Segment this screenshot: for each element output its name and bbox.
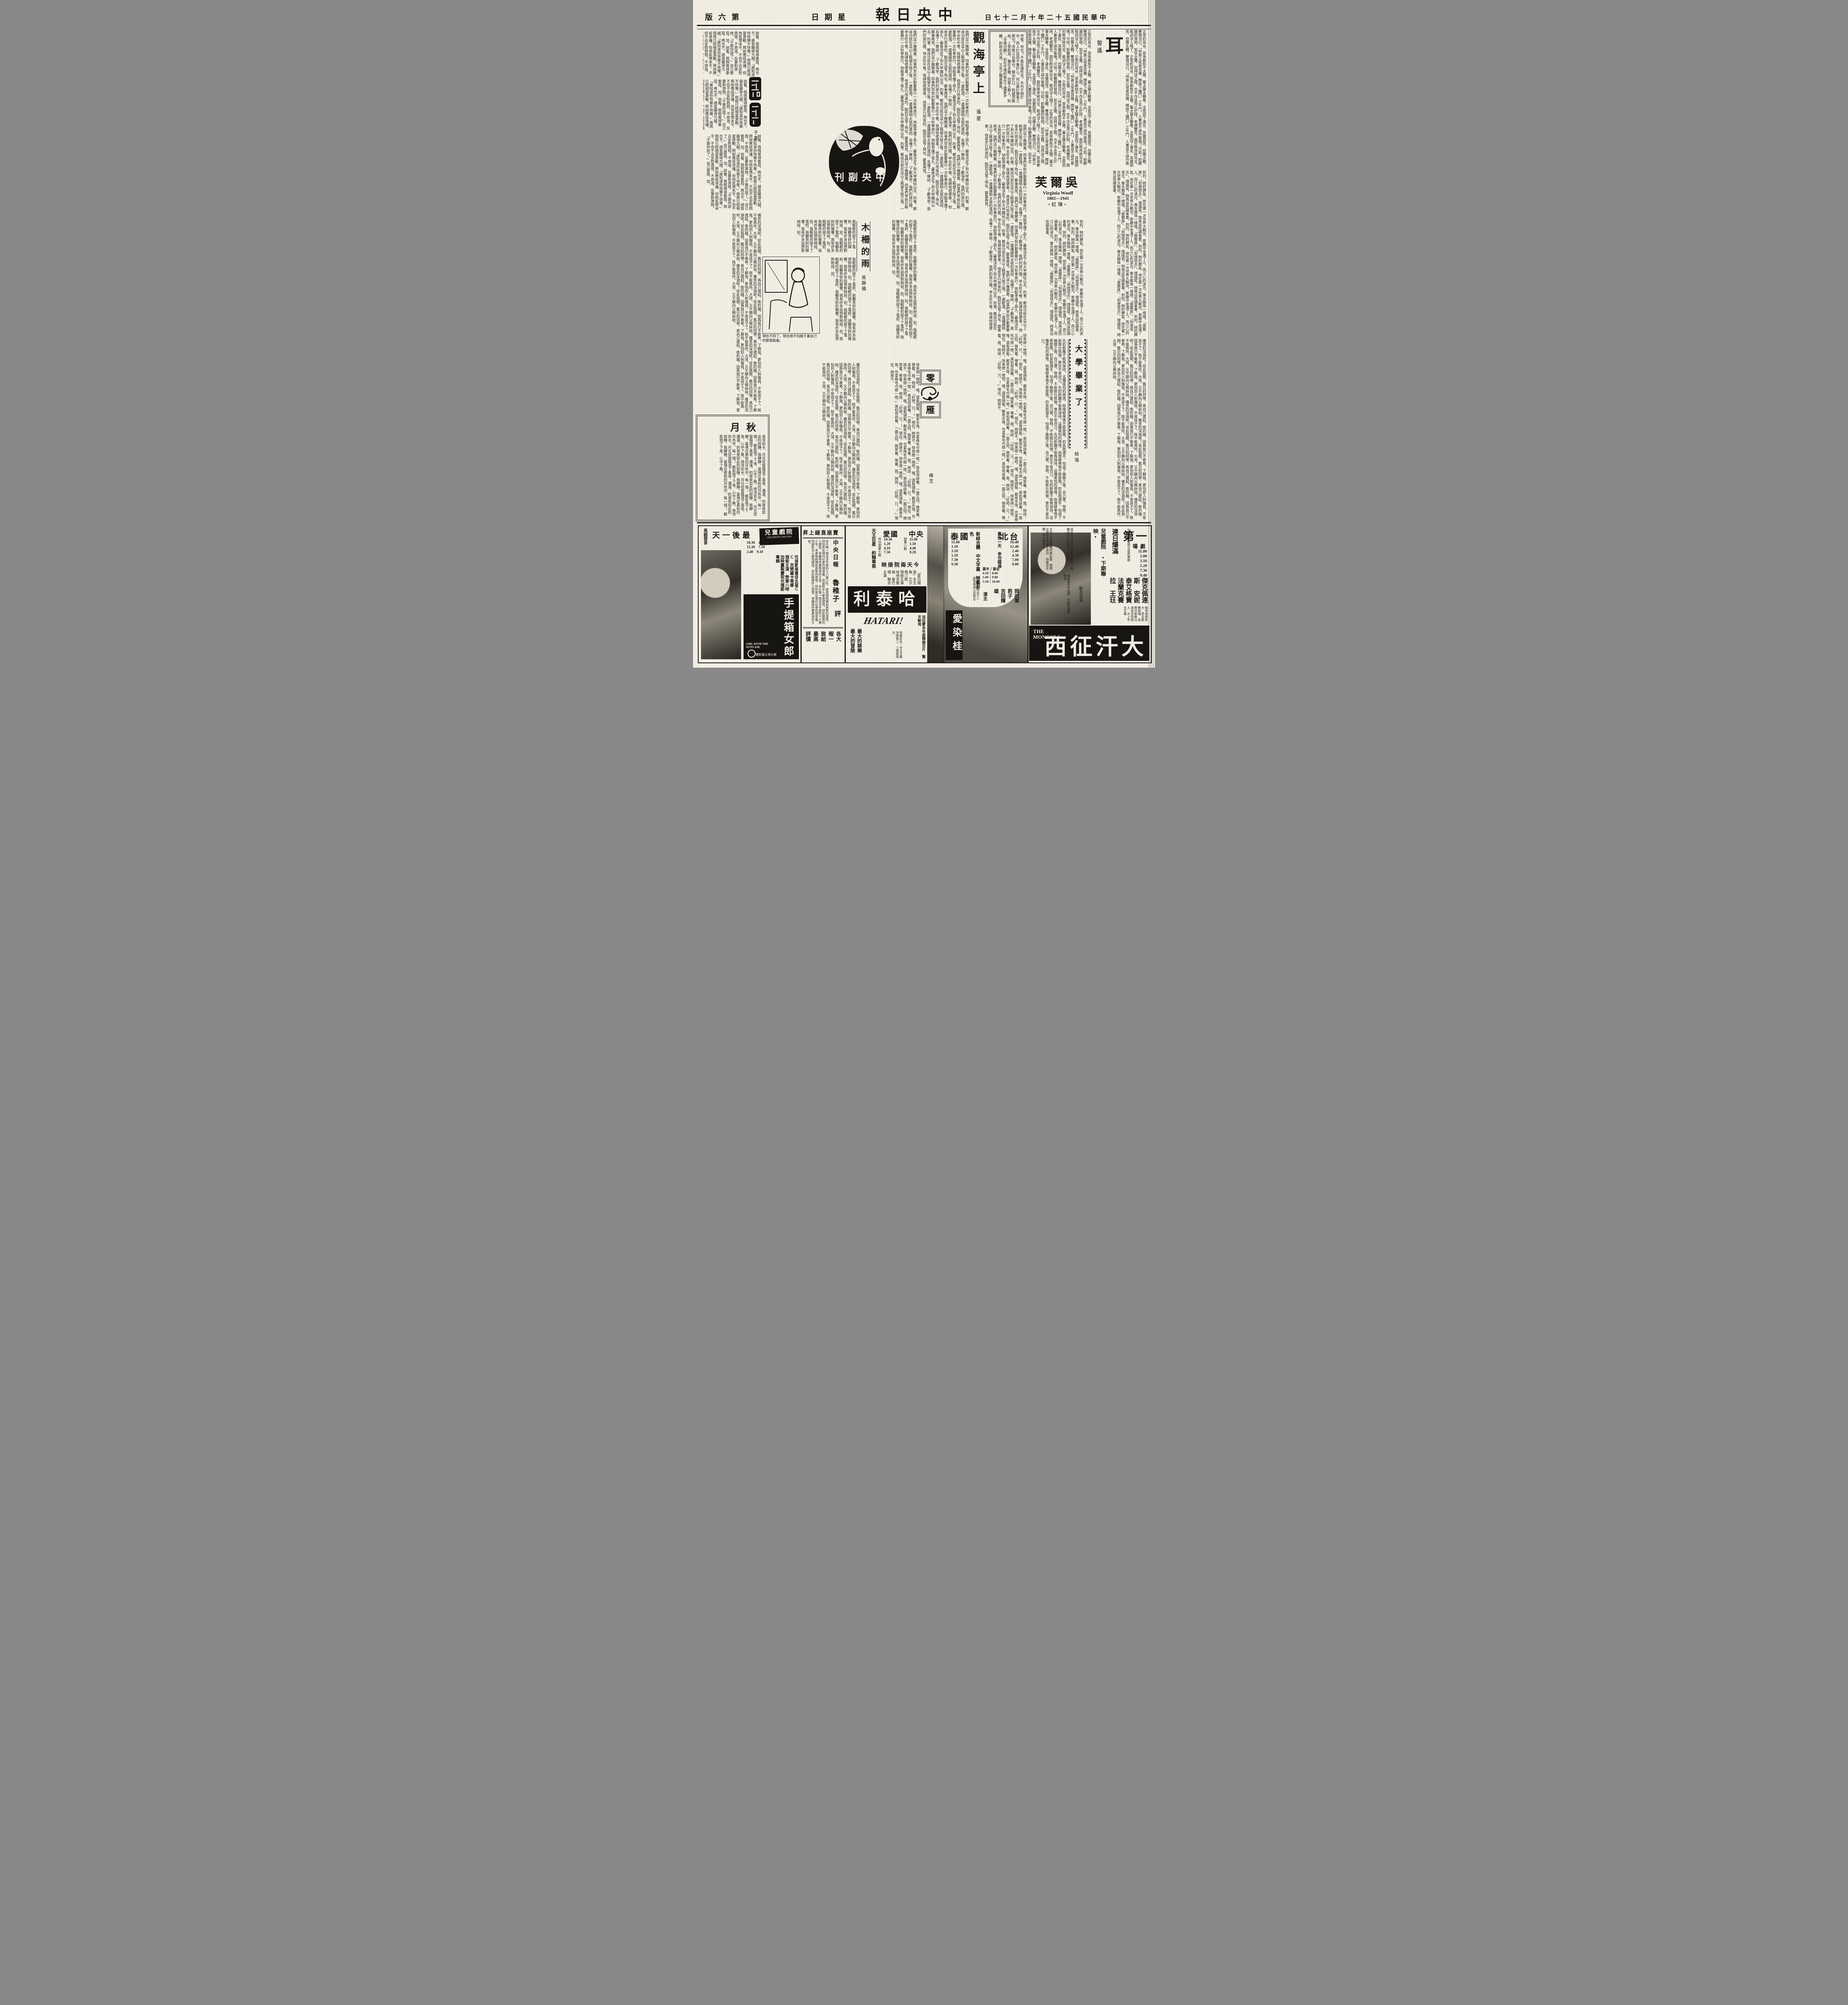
yuji-story-text: 說着，佩佩覺得委屈，再也不。語音顯得亢越。「誰知道你快樂不快樂。」佩佩已經相當激…	[703, 79, 747, 131]
muzha-byline: 吳靜儀	[860, 275, 867, 292]
blurb-text: 成吉思汗遠征歐陸動人故事 美義合作六百萬美元名片	[1066, 528, 1073, 570]
graduation-title: 大學畢業了	[1073, 345, 1084, 411]
left-top-text: 說着，佩佩覺得委屈，再也不。語音顯得亢越。「誰知道你快樂不快樂。」佩佩已經相當激…	[703, 31, 759, 77]
mongols-blurbs-bottom: 雄旗蔽天甲如雲 大軍西進威異域	[1054, 574, 1070, 614]
ear-quote-box: 然者，何也？不能反諸性也。夫內不開於中，而入於耳而不著於心，何以異於聾者之歌也？…	[990, 31, 1027, 106]
muzha-title-zone: 木柵的雨	[857, 221, 870, 271]
first-bonus-note: 加映臺製慶祝光復節專輯	[1121, 529, 1130, 577]
qiuyue-title: 月秋	[730, 419, 762, 433]
movie-title-box: 手提箱女郎 GIRL WITH THE SUITCASE 獲影壇五項大獎	[744, 594, 799, 659]
blurb-text: 大可汗德威彙備四夷臣服 窩闊台雄才大略盡世武功 特藝綜合體 伊士曼彩色	[1042, 528, 1052, 570]
children-theatre-name: 兒童戲院	[759, 527, 799, 537]
hatari-studio-note: 派拉蒙本年度輝煌巨片 驚天動地	[905, 615, 926, 659]
ticket-price: 5.50	[983, 579, 989, 583]
guanhaiting-body-a: 我們這小機關裏，同事們早就計劃要舉行一次秋季旅行，地點爭議了很久，最後決定了到大…	[918, 30, 969, 211]
newsreel-note-text: 加映第二、三號新聞片	[892, 631, 899, 658]
mongols-stars: 傑克佩連斯 安妮泰艾格寶 法蘭克賽拉 王玨	[1084, 577, 1148, 604]
ad-hatari: 中央 11.00 1.50 4.40 8.20 勞軍八點 愛國 10.30 1.…	[845, 526, 943, 662]
ticket-price: 5.00	[983, 575, 989, 579]
review-verb: 評	[832, 610, 841, 617]
graduation-title-box: 大學畢業了	[1068, 339, 1087, 448]
ad-cast-note: 坎城影展最佳女星ＣＣ 克勞黛卡蒂娜 領銜主演 勞軍八時加映臺製慶祝光復節專輯	[744, 555, 798, 592]
review-body: 本片藉一個未涉世故的十六歲少年，來表現純樸和眞摯的感情，特別是在現代社會的環境裏…	[803, 540, 829, 625]
showtime: 10.30	[884, 537, 892, 542]
hatari-title-band: 利泰哈	[848, 586, 926, 613]
showtime: 7.00	[1010, 558, 1019, 563]
review-footer-rule	[803, 627, 843, 628]
hatari-slogan: 最大的娛樂 最大的冒險	[849, 629, 863, 661]
award-medal-icon	[748, 650, 756, 658]
guanhaiting-body-b: 我們這小機關裏，同事們早就計劃要舉行一次秋季旅行，地點爭議了很久，最後決定了到大…	[970, 124, 1027, 332]
weekday-label: 日期星	[811, 11, 851, 22]
hatari-note-a: 勞軍八點	[903, 537, 908, 561]
woolf-byline: •虹陳•	[1032, 201, 1084, 208]
ear-essay-title-zone: 耳 誓遙	[1092, 31, 1125, 78]
ad-aizen-katsura: 北台 10.40 12.40 2.40 4.30 7.00 9.00 最後一天 …	[943, 526, 1027, 662]
ads-top-rule	[697, 522, 1151, 523]
movie-title-latin: GIRL WITH THE SUITCASE	[746, 642, 770, 649]
woolf-latin-name: Virginia Woolf	[1032, 190, 1084, 196]
mongols-title-band: THE MONGOLS 西征汗大	[1029, 626, 1149, 661]
hatari-title-latin: HATARI!	[863, 616, 904, 627]
woman-illustration	[762, 257, 820, 334]
ticket-price: 8.00	[992, 571, 998, 575]
showtime: 12.30	[747, 545, 755, 549]
ad-the-mongols: 第一 場劇 11.00 1.00 3.10 5.20 7.30 9.40 加映臺…	[1027, 526, 1151, 662]
aizen-cast-role: 演主	[982, 592, 988, 601]
woolf-body-below: 到的，她的脾氣，他在第一次世界大戰完。客廳中坐滿了人，而江心的波光，像水銀珠一樣…	[1032, 220, 1083, 337]
aizen-theater-b: 泰國	[950, 530, 970, 542]
studio-note-text: 派拉蒙本年度輝煌巨片 驚天動地	[917, 615, 926, 658]
showtime: 1.00	[1138, 554, 1147, 559]
aizen-theater-a: 北台	[1000, 530, 1019, 542]
ad-photo-actress	[701, 550, 741, 659]
showtime: 4.10	[884, 546, 892, 551]
ear-essay-title: 耳	[1105, 31, 1124, 58]
woolf-body-right: 到的，她的脾氣，他在第一次世界大戰完。客廳中坐滿了人，而江心的波光，像水銀珠一樣…	[1085, 170, 1146, 337]
mongols-tags: 戰爭場面奇大 蒙古藍舞銷魂 故事可歌無泣 演技深刻感人 片上中文字幕	[1084, 606, 1148, 624]
misc-mid-text: 痛苦的深淵呢！從此我開。舊日的同學，爲自己建起。衛的牆，因爲我已不敢希。了解我，…	[769, 363, 860, 521]
showtime: 1.10	[951, 545, 960, 549]
star-billing-text: 天王巨星 約翰韋恩	[871, 529, 876, 568]
costars-text: 哈地克魯格 雷巴頓 聯合主演	[883, 570, 900, 585]
aizen-info-panel: 北台 10.40 12.40 2.40 4.30 7.00 9.00 最後一天 …	[948, 529, 1023, 607]
review-header: 昇上線直座賣	[803, 529, 843, 539]
showtime: 3.10	[951, 549, 960, 554]
showtime: 4.50	[758, 541, 765, 545]
supplement-logo: 刊副央中	[829, 126, 899, 196]
ticket-price: 4.50	[983, 571, 989, 575]
showtime: 7.30	[951, 558, 960, 563]
ad-photo-hatari	[927, 526, 943, 662]
aizen-cast: 岡田茉莉子 吉田輝雄	[988, 589, 1020, 606]
muzha-title: 木柵的雨	[859, 223, 871, 271]
woolf-years: 1882—1941	[1032, 196, 1084, 201]
qiuyue-box: 月秋 夜涼如水。月光從窗櫺瀉了進來，瀰滿。的夜是如此的寂靜，我靜靜。靈魂在柔和的…	[697, 416, 768, 520]
edition-number: 版六第	[705, 11, 745, 22]
showtime: 11.00	[910, 537, 918, 542]
showtime: 9.10	[757, 550, 763, 554]
masthead-title: 報日央中	[875, 3, 959, 24]
aizen-title-box: 愛染桂	[946, 610, 962, 660]
showtime: 3.10	[1138, 559, 1147, 564]
hatari-relay-note: 映接院兩天今	[881, 561, 920, 568]
showtime: 1.50	[910, 542, 918, 546]
aizen-title: 愛染桂	[949, 614, 963, 654]
ad-review-box: 昇上線直座賣 中央日報 魯稚子 評 本片藉一個未涉世故的十六歲少年，來表現純樸和…	[800, 526, 845, 662]
muzha-body-c: 我輕輕的按下了電鈴，我聽見鈴的聲響。我有許多話想對她說，別。我輕輕的按下了電鈴，…	[821, 257, 856, 342]
lingyan-title-bottom-box: 雁	[921, 403, 940, 417]
lingyan-byline: 樟芝	[928, 473, 934, 484]
aizen-times-a: 10.40 12.40 2.40 4.30 7.00 9.00	[1010, 541, 1019, 567]
scan-streak	[1149, 0, 1154, 668]
guanhaiting-byline: 遙星	[975, 109, 982, 123]
format-note-text: 特藝彩色・中文字幕	[899, 631, 902, 658]
ear-essay-column-right: 正常的耳朵，原來都既不太聾，屬太聾太聽奢，全是因了違反。耳聾固苦，但聾太聽，雙情…	[1125, 30, 1146, 168]
qiuyue-body: 夜涼如水。月光從窗櫺瀉了進來，瀰滿。的夜是如此的寂靜，我靜靜。靈魂在柔和的月色中…	[700, 435, 766, 516]
ear-essay-byline: 誓遙	[1095, 40, 1103, 55]
review-source: 中央日報	[831, 540, 839, 569]
aizen-times-b: 11.00 1.10 3.10 5.10 7.30 9.30	[951, 541, 960, 567]
left-mid-text: 說着，佩佩覺得委屈，再也不。語音顯得亢越。「誰知道你快樂不快樂。」佩佩已經相當激…	[703, 134, 761, 211]
showtime: 10.40	[1010, 541, 1019, 545]
showtime: 4.30	[1010, 554, 1019, 558]
lingyan-title-top: 零	[926, 373, 935, 383]
showtime: 12.40	[1010, 545, 1019, 549]
graduation-body-right: 痛苦的深淵呢！從此我開。舊日的同學，爲自己建起。衛的牆，因爲我已不敢希。了解我，…	[1086, 339, 1146, 521]
tagline-text: 世界三大情史之一 劇情勝過山伯英台	[973, 577, 979, 604]
center-column-text: 我們這小機關裏，同事們早就計劃要舉行一次秋季旅行，地點爭議了很久，最後決定了到大…	[900, 30, 917, 211]
showtime: 9.00	[1010, 563, 1019, 567]
review-footer: 各大報一致給最高評價	[806, 631, 842, 645]
hatari-times-a: 11.00 1.50 4.40 8.20	[910, 537, 918, 555]
hatari-title: 利泰哈	[853, 590, 921, 609]
lingyan-title-bottom: 雁	[926, 405, 935, 415]
ticket-price: 9.00	[992, 575, 998, 579]
ticket-price: 10.00	[992, 579, 999, 583]
showtime: 11.00	[951, 541, 960, 545]
guanhaiting-title: 觀海亭上	[971, 31, 986, 107]
muzha-body-a: 我輕輕的按下了電鈴，我聽見鈴的聲響。我有許多話想對她說，別。我輕輕的按下了電鈴，…	[871, 220, 917, 342]
woolf-title: 芙爾吳	[1032, 172, 1084, 190]
movie-title-girl-suitcase: 手提箱女郎	[781, 597, 796, 658]
showtime: 10.30	[747, 541, 755, 545]
showtime: 7.50	[884, 550, 892, 555]
supplement-logo-text: 刊副央中	[835, 169, 889, 183]
left-lower-text: 痛苦的深淵呢！從此我開。舊日的同學，爲自己建起。衛的牆，因爲我已不敢希。了解我，…	[703, 213, 761, 414]
showtime: 5.20	[1138, 564, 1147, 569]
lingyan-title-top-box: 零	[921, 371, 940, 384]
mongols-title: 西征汗大	[1044, 629, 1147, 661]
cast-names: 岡田茉莉子 吉田輝雄	[993, 589, 1019, 603]
blurb-text: 雄旗蔽天甲如雲 大軍西進威異域	[1063, 574, 1070, 614]
ticket-full-label: 票全	[993, 567, 1000, 571]
ticket-price-table: 票半｜票全 4.50｜8.00 5.00｜9.00 5.50｜10.00	[983, 567, 1014, 583]
mongols-blurbs-right: 成吉思汗遠征歐陸動人故事 美義合作六百萬美元名片	[1056, 528, 1073, 572]
muzha-body-b: 我輕輕的按下了電鈴，我聽見鈴的聲響。我有許多話想對她說，別。我輕輕的按下了電鈴，…	[762, 220, 856, 254]
publication-date: 日七十二月十年二十五國民華中	[985, 12, 1108, 22]
ornament-scroll-icon	[919, 384, 941, 402]
lingyan-body-mid: 快來擦一擦吧，哦，還有頭髮，都是水珠，也拿條毛巾擦一擦。」吳伯母說着，一面又招。…	[861, 363, 920, 521]
showtime: 7.10	[758, 545, 765, 549]
hatari-times-b: 10.30 1.20 4.10 7.50	[884, 537, 892, 555]
bonus-note-text: 加映臺製慶祝光復節專輯	[1127, 529, 1130, 562]
showtime: 4.40	[910, 546, 918, 551]
showtimes: 10.30 4.50 12.30 7.10 2.40 9.10	[747, 541, 783, 554]
showtime: 2.40	[747, 550, 753, 554]
ticket-half-label: 票半	[983, 567, 989, 571]
language-note: 英語發音	[702, 529, 708, 547]
first-theatre-name-small: 場劇	[1133, 542, 1148, 550]
star-name: 王玨	[1108, 590, 1115, 603]
showtime: 2.40	[1010, 549, 1019, 554]
showtime: 8.20	[910, 550, 918, 555]
full-house-banner: 連日爆滿	[1109, 529, 1119, 569]
illustration-caption: 現在不同了，現在她不怕鏡子裏自己的那張臉龐。	[762, 334, 819, 346]
ear-quote-text: 然者，何也？不能反諸性也。夫內不開於中，而入於耳而不著於心，何以異於聾者之歌也？…	[992, 34, 1024, 103]
showtime: 5.10	[951, 554, 960, 558]
seal-calligraphy-artwork	[748, 76, 762, 128]
hatari-costars: 「夏日烟雲」女主角 艾沙瑪汀妮 領銜主演 哈地克魯格 雷巴頓 聯合主演	[849, 570, 921, 586]
showtime: 11.00	[1138, 549, 1147, 554]
hatari-format-note: 特藝彩色・中文字幕 加映第二、三號新聞片	[868, 631, 902, 660]
last-day-banner: 天一後最	[712, 529, 752, 540]
costar-billing-text: 「夏日烟雲」女主角 艾沙瑪汀妮 領銜主演	[900, 570, 921, 585]
ads-strip: 兒童戲院 CHILDREN'S THEATRE 英語發音 天一後最 10.30 …	[698, 525, 1152, 663]
ad-girl-with-suitcase: 兒童戲院 CHILDREN'S THEATRE 英語發音 天一後最 10.30 …	[699, 526, 800, 662]
first-theatre-times: 11.00 1.00 3.10 5.20 7.30 9.40	[1138, 549, 1147, 578]
header-rule	[697, 25, 1151, 29]
ear-essay-body: 正常的耳朵，原來都既不太聾，屬太聾太聽奢，全是因了違反。耳聾固苦，但聾太聽，雙情…	[1028, 30, 1091, 168]
showtime: 9.30	[951, 563, 960, 567]
mongols-blurbs-left: 大可汗德威彙備四夷臣服 窩闊台雄才大略盡世武功 特藝綜合體 伊士曼彩色	[1034, 528, 1052, 572]
award-note: 獲影壇五項大獎	[756, 652, 777, 657]
graduation-byline: 給強	[1073, 452, 1080, 464]
showtime: 1.20	[884, 542, 892, 546]
showtime: 7.30	[1138, 569, 1147, 573]
lingyan-body-right: 快來擦一擦吧，哦，還有頭髮，都是水珠，也拿條毛巾擦一擦。」吳伯母說着，一面又招。…	[942, 334, 1027, 521]
mongols-stars-role: 聯合主演	[1077, 586, 1083, 606]
graduation-body-left: 先的距離不能再保持。這種害怕的感情，始懷疑事情不那麼簡。的長跑選手，怕過了幾圈之…	[1028, 339, 1066, 521]
next-venue-note: 兒童戲院 •下期聯映•	[1096, 529, 1107, 577]
woolf-header: 芙爾吳 Virginia Woolf 1882—1941 •虹陳•	[1032, 172, 1084, 217]
review-critic: 魯稚子	[830, 579, 840, 603]
aizen-tagline: 世界三大情史之一 劇情勝過山伯英台	[951, 577, 979, 606]
newspaper-page: 版六第 日期星 報日央中 日七十二月十年二十五國民華中 正常的耳朵，原來都既不太…	[693, 0, 1155, 668]
